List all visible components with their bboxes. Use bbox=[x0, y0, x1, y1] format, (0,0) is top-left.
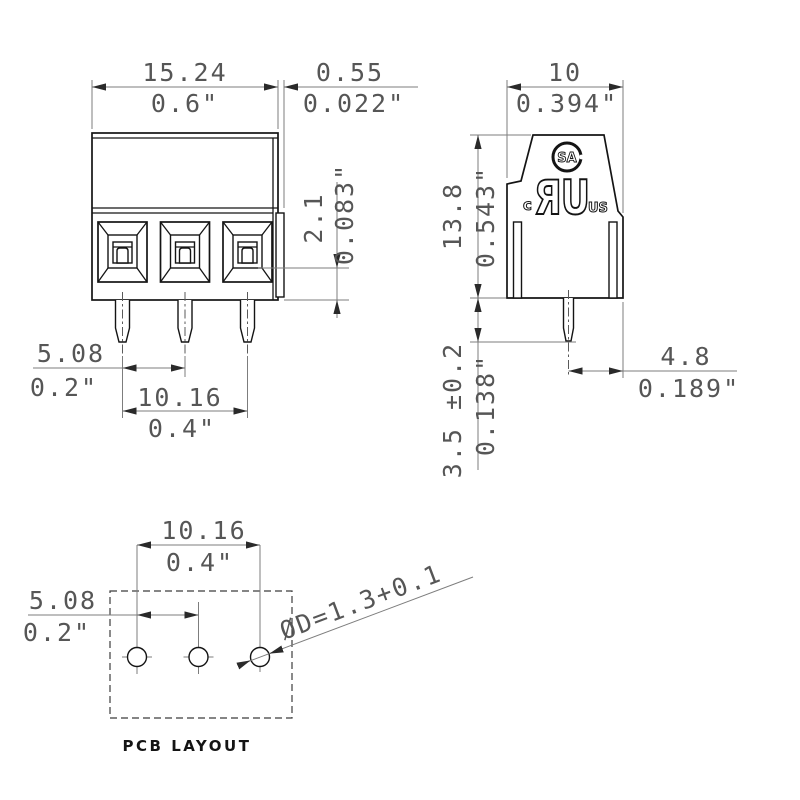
dim-pcb-pitch-mm: 5.08 bbox=[29, 586, 97, 615]
pcb-layout-view: 10.16 0.4" 5.08 0.2" ØD=1.3+0.1 PCB LAYO… bbox=[23, 516, 473, 755]
dim-pcb-span-inch: 0.4" bbox=[166, 548, 234, 577]
terminal-cell-3 bbox=[223, 222, 272, 282]
ul-mark-c: c bbox=[523, 196, 532, 214]
dim-front-span-mm: 10.16 bbox=[137, 383, 222, 412]
pcb-hole-diameter-label: ØD=1.3+0.1 bbox=[276, 558, 446, 645]
dim-front-pitch-inch: 0.2" bbox=[30, 373, 98, 402]
side-slot-right bbox=[609, 222, 617, 298]
dim-front-width: 15.24 0.6" bbox=[92, 58, 278, 129]
front-pins bbox=[116, 292, 255, 354]
pcb-hole-1 bbox=[128, 648, 147, 667]
dim-side-pin-length-mm: 3.5 ±0.2 bbox=[438, 342, 467, 478]
dim-front-wall-inch: 0.022" bbox=[303, 89, 405, 118]
dim-pcb-pitch-inch: 0.2" bbox=[23, 618, 91, 647]
pcb-hole-2 bbox=[189, 648, 208, 667]
dim-front-span-inch: 0.4" bbox=[148, 414, 216, 443]
dim-side-pin-length-inch: 0.138" bbox=[471, 354, 500, 456]
front-side-wall bbox=[276, 213, 284, 297]
technical-drawing-page: 15.24 0.6" 0.55 0.022" 2.1 0.083" 5.08 bbox=[0, 0, 800, 800]
terminal-cell-1 bbox=[98, 222, 147, 282]
dim-side-pin-offset-mm: 4.8 bbox=[660, 342, 711, 371]
dim-front-width-inch: 0.6" bbox=[151, 89, 219, 118]
dim-side-pin-offset-inch: 0.189" bbox=[638, 374, 740, 403]
dim-side-pin-offset: 4.8 0.189" bbox=[569, 302, 741, 403]
ul-mark-us: US bbox=[588, 201, 608, 216]
dim-front-recess-mm: 2.1 bbox=[299, 192, 328, 243]
dim-pcb-span: 10.16 0.4" bbox=[137, 516, 260, 577]
ul-mark-ru: ЯU bbox=[534, 170, 589, 225]
dim-pcb-pitch: 5.08 0.2" bbox=[23, 586, 199, 647]
dim-side-height-mm: 13.8 bbox=[438, 182, 467, 250]
side-view: SA c ЯU US 10 0.394" 13.8 0.543" bbox=[438, 58, 740, 478]
pcb-hole-diameter-leader: ØD=1.3+0.1 bbox=[239, 558, 473, 665]
side-pin bbox=[564, 290, 574, 377]
dim-front-width-mm: 15.24 bbox=[142, 58, 227, 87]
terminal-block-drawing: 15.24 0.6" 0.55 0.022" 2.1 0.083" 5.08 bbox=[0, 0, 800, 800]
dim-front-wall-mm: 0.55 bbox=[316, 58, 384, 87]
side-slot-left bbox=[514, 222, 522, 298]
dim-side-width-mm: 10 bbox=[548, 58, 582, 87]
terminal-cell-2 bbox=[161, 222, 210, 282]
dim-side-height-inch: 0.543" bbox=[471, 166, 500, 268]
dim-front-pitch-mm: 5.08 bbox=[37, 339, 105, 368]
front-view: 15.24 0.6" 0.55 0.022" 2.1 0.083" 5.08 bbox=[30, 58, 418, 443]
pcb-layout-caption: PCB LAYOUT bbox=[123, 737, 252, 755]
csa-monogram-text: SA bbox=[557, 151, 576, 166]
dim-side-width-inch: 0.394" bbox=[516, 89, 618, 118]
dim-side-pin-length: 3.5 ±0.2 0.138" bbox=[438, 298, 576, 478]
dim-pcb-span-mm: 10.16 bbox=[161, 516, 246, 545]
dim-front-recess-inch: 0.083" bbox=[330, 163, 359, 265]
